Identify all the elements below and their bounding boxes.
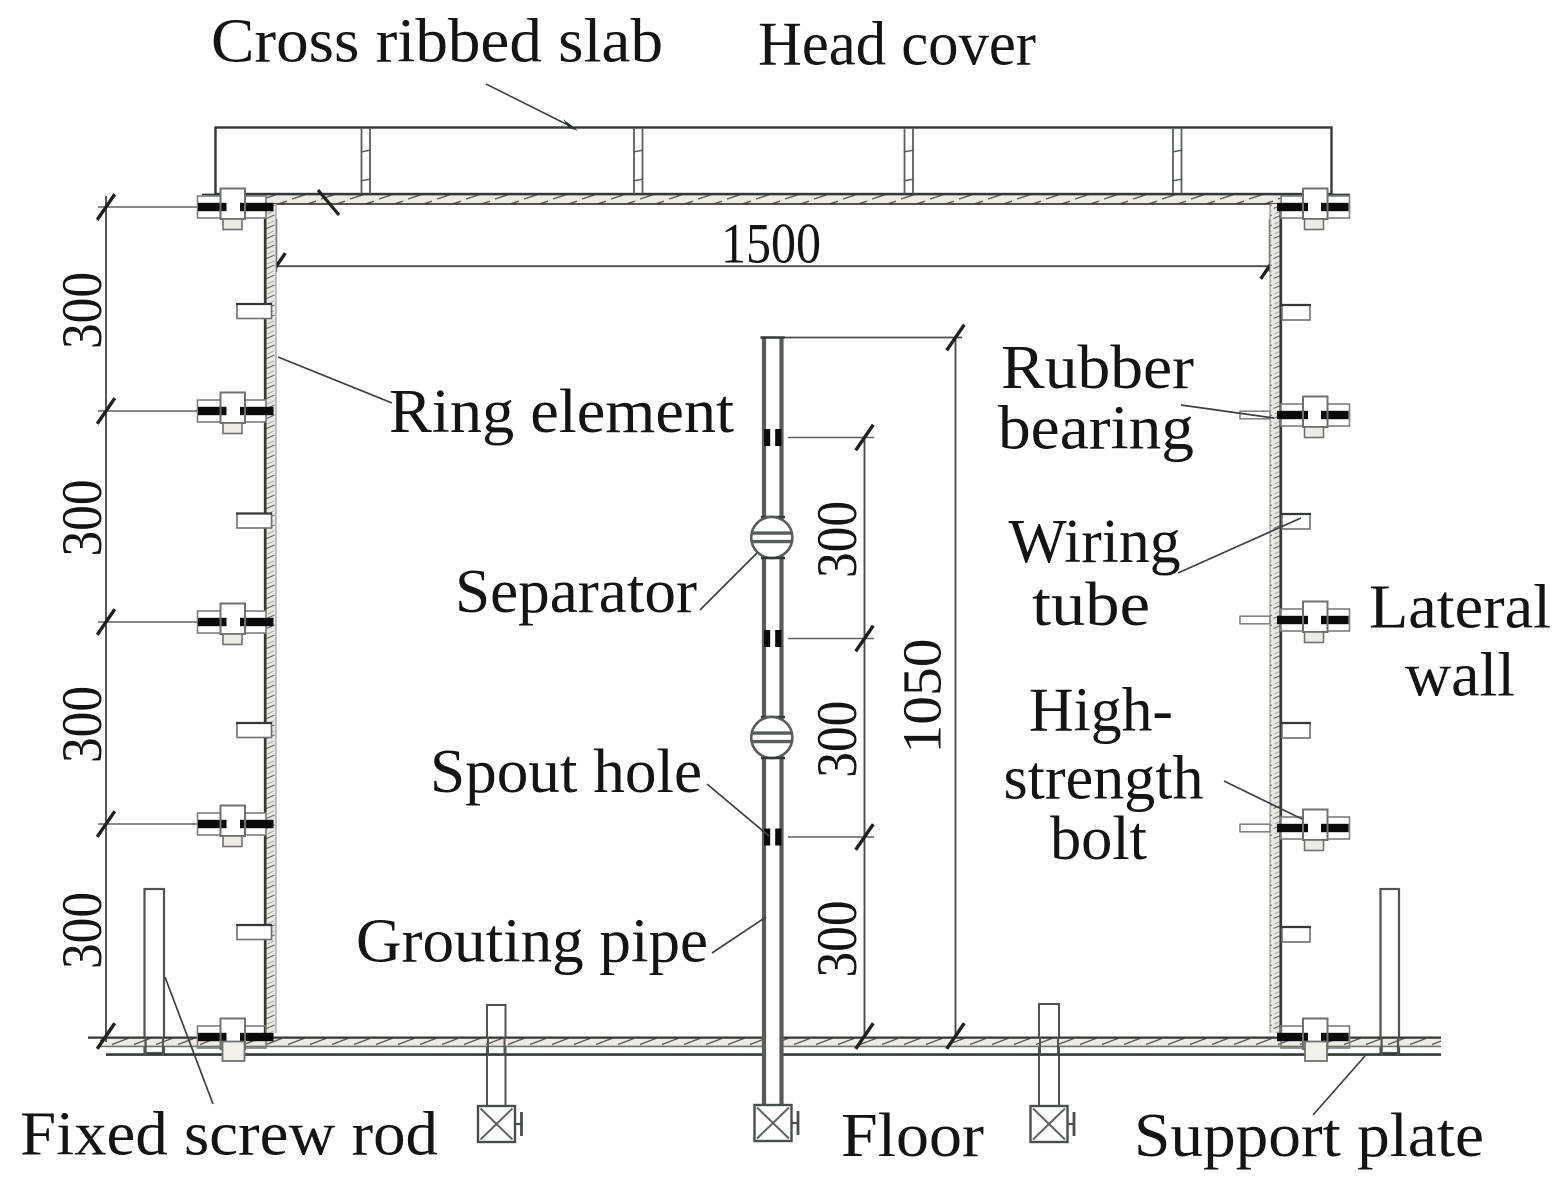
svg-text:Wiring: Wiring [1009,508,1181,576]
svg-text:Cross ribbed slab: Cross ribbed slab [211,8,663,76]
svg-text:tube: tube [1032,571,1150,639]
svg-text:Floor: Floor [841,1102,984,1170]
svg-text:Spout hole: Spout hole [430,738,702,806]
svg-text:1050: 1050 [892,639,953,754]
svg-text:300: 300 [51,892,114,969]
svg-text:High-: High- [1029,677,1173,745]
svg-text:bearing: bearing [998,395,1194,463]
svg-text:strength: strength [1004,745,1204,813]
svg-text:Grouting pipe: Grouting pipe [356,907,708,975]
svg-text:Fixed screw rod: Fixed screw rod [20,1100,438,1168]
svg-text:1500: 1500 [721,213,821,276]
svg-text:Lateral: Lateral [1369,573,1551,641]
svg-text:wall: wall [1405,641,1515,709]
svg-text:300: 300 [806,501,869,578]
svg-text:Rubber: Rubber [1001,334,1194,402]
svg-text:Ring element: Ring element [389,378,734,446]
svg-text:300: 300 [806,701,869,778]
svg-text:Head cover: Head cover [758,11,1036,79]
svg-text:300: 300 [51,272,114,349]
svg-text:300: 300 [51,480,114,557]
svg-text:bolt: bolt [1050,805,1147,873]
svg-text:300: 300 [806,901,869,978]
svg-text:Separator: Separator [455,558,697,626]
svg-text:Support plate: Support plate [1134,1102,1484,1170]
svg-text:300: 300 [51,686,114,763]
